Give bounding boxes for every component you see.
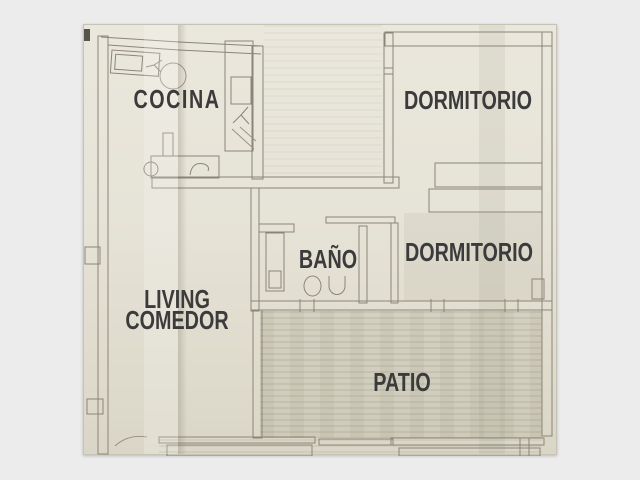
- room-label-bano: BAÑO: [299, 246, 357, 272]
- bottom-room-wall-3: [391, 438, 544, 445]
- wall-left-outer: [98, 36, 108, 454]
- scanned-floorplan-page: COCINA DORMITORIO BAÑO DORMITORIO LIVING…: [0, 0, 640, 480]
- door-opening-bano: [300, 303, 314, 309]
- wall-dormitorio2-left: [391, 223, 398, 303]
- bidet-fixture: [304, 276, 321, 296]
- door-opening-dorm2: [431, 303, 444, 309]
- door-leaf-dormitorio2: [326, 217, 395, 223]
- room-label-comedor: COMEDOR: [125, 307, 228, 333]
- kitchen-appliance-rect: [231, 77, 251, 104]
- bed-rect-lower: [429, 189, 542, 212]
- wall-bano-top: [259, 224, 294, 232]
- wall-cocina-top-inner: [108, 45, 261, 54]
- room-label-dormitorio-top: DORMITORIO: [404, 87, 532, 113]
- wall-cocina-right: [252, 46, 263, 179]
- kitchen-hatch-1: [232, 129, 254, 149]
- room-label-patio: PATIO: [373, 369, 430, 395]
- bottom-room-rect-2: [399, 448, 540, 456]
- kitchen-faucet2-icon: [233, 107, 249, 124]
- bottom-room-wall-1: [159, 437, 315, 443]
- wall-dormitorio1-left: [384, 33, 393, 183]
- wall-dormitorio1-top: [385, 32, 552, 46]
- bed-rect-upper: [435, 163, 542, 187]
- floorplan-paper: COCINA DORMITORIO BAÑO DORMITORIO LIVING…: [83, 24, 557, 455]
- kitchen-faucet-icon: [146, 60, 162, 72]
- wall-living-patio: [253, 310, 262, 438]
- kitchen-sink-basin: [115, 54, 143, 71]
- room-label-dormitorio-mid: DORMITORIO: [405, 239, 533, 265]
- kitchen-counter-topleft: [110, 50, 159, 76]
- wall-bano-right-a: [359, 226, 367, 303]
- left-wall-notch-2: [87, 399, 103, 414]
- wall-right-outer: [542, 32, 552, 436]
- toilet-fixture: [329, 276, 345, 295]
- scan-smudge-mark: [84, 29, 90, 41]
- kitchen-faucet-hook-icon: [190, 163, 209, 175]
- door-opening-patio: [505, 303, 518, 309]
- wall-bano-left: [251, 188, 259, 311]
- wall-hall-long: [152, 177, 399, 188]
- shower-drain-rect: [269, 271, 281, 288]
- door-swing-arc: [115, 436, 147, 446]
- kitchen-stove-rect: [163, 133, 173, 156]
- bottom-wall-stub: [520, 438, 529, 456]
- room-label-cocina: COCINA: [133, 86, 220, 112]
- bottom-room-rect-1: [167, 445, 312, 456]
- kitchen-counter-low: [151, 156, 219, 178]
- bottom-room-wall-2: [319, 439, 393, 445]
